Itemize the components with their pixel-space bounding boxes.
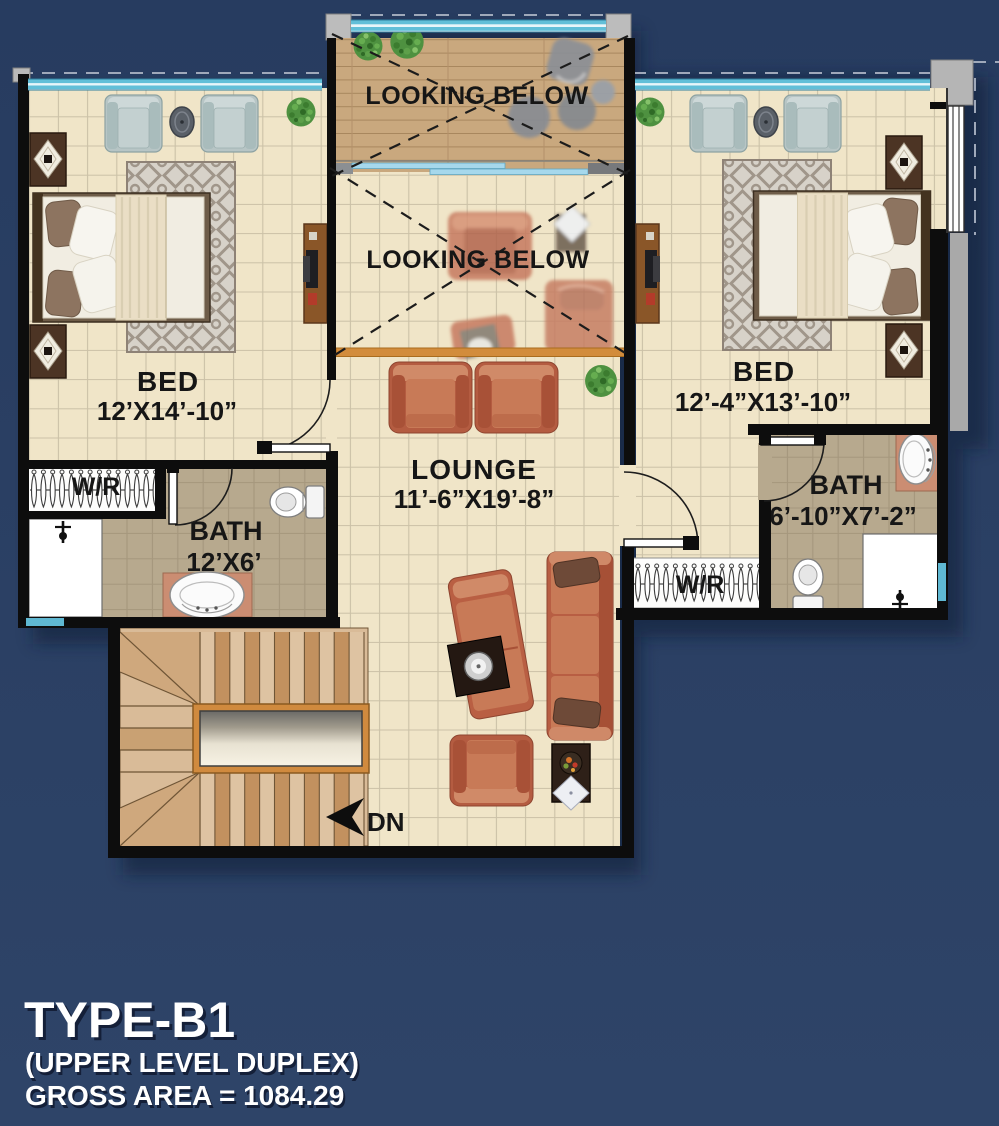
- svg-text:LOUNGE: LOUNGE: [411, 454, 537, 485]
- svg-text:GROSS AREA = 1084.29: GROSS AREA = 1084.29: [25, 1080, 344, 1111]
- svg-text:11’-6”X19’-8”: 11’-6”X19’-8”: [394, 484, 554, 514]
- svg-text:12’X6’: 12’X6’: [186, 547, 261, 577]
- svg-text:W/R: W/R: [676, 571, 725, 599]
- svg-text:6’-10”X7’-2”: 6’-10”X7’-2”: [769, 501, 916, 531]
- svg-text:BED: BED: [733, 356, 795, 387]
- svg-text:BATH: BATH: [810, 470, 883, 500]
- svg-text:DN: DN: [367, 807, 405, 837]
- svg-text:12’X14’-10”: 12’X14’-10”: [97, 396, 237, 426]
- svg-text:LOOKING BELOW: LOOKING BELOW: [365, 82, 588, 110]
- svg-text:LOOKING BELOW: LOOKING BELOW: [366, 246, 589, 274]
- svg-text:12’-4”X13’-10”: 12’-4”X13’-10”: [675, 387, 851, 417]
- svg-text:(UPPER LEVEL DUPLEX): (UPPER LEVEL DUPLEX): [25, 1047, 359, 1078]
- svg-text:BATH: BATH: [190, 516, 263, 546]
- svg-text:TYPE-B1: TYPE-B1: [24, 992, 235, 1048]
- svg-text:W/R: W/R: [72, 473, 121, 501]
- svg-text:BED: BED: [137, 366, 199, 397]
